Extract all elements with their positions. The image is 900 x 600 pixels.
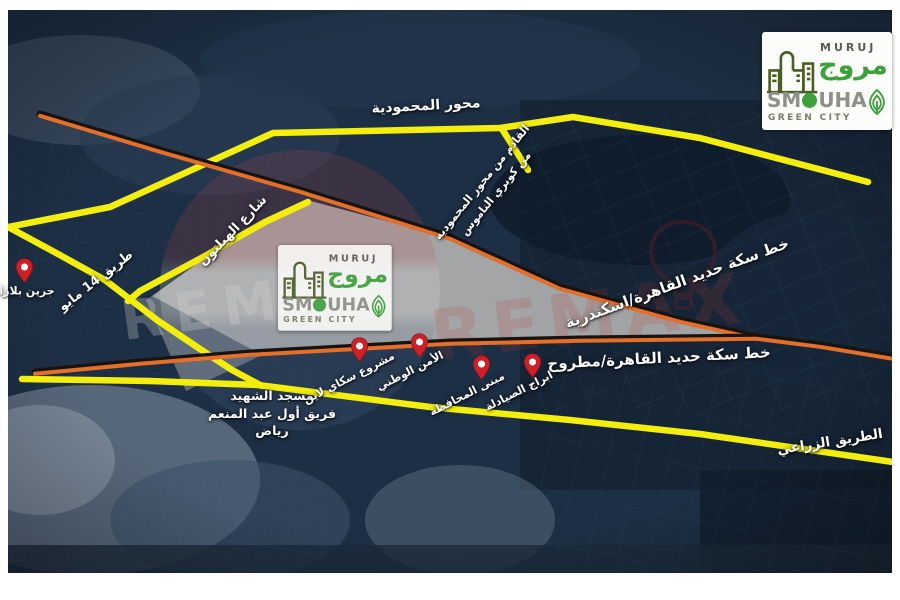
pin-icon <box>350 337 369 362</box>
district-o-disc: O <box>802 93 817 108</box>
brand-name-ar: مروج <box>327 262 388 288</box>
leaf-icon <box>368 294 389 319</box>
brand-tagline: GREEN CITY <box>283 316 356 325</box>
pin-icon <box>410 333 429 358</box>
pin-icon <box>15 258 34 283</box>
district-suffix: UHA <box>327 294 369 315</box>
brand-logo-watermark: MURUJ مروج SMOUHA GREEN CITY <box>278 245 392 331</box>
map-pin-governorate-building <box>472 355 491 384</box>
location-map: REMAX REMAX <box>0 0 900 600</box>
map-pin-green-plaza <box>15 258 34 287</box>
district-prefix: SM <box>767 88 801 112</box>
pin-icon <box>472 355 491 380</box>
mosque-label-line2: فريق أول عبد المنعم <box>208 404 336 422</box>
district-o-disc: O <box>313 298 326 311</box>
map-pin-skyline-project <box>350 337 369 366</box>
brand-district: SMOUHA <box>282 294 369 315</box>
district-prefix: SM <box>282 294 312 315</box>
brand-name-ar: مروج <box>818 51 888 81</box>
map-pin-national-security <box>410 333 429 362</box>
brand-tagline: GREEN CITY <box>768 113 852 123</box>
district-suffix: UHA <box>818 88 866 112</box>
leaf-icon <box>865 88 889 116</box>
map-pin-pharmacists-towers <box>523 353 542 382</box>
brand-district: SMOUHA <box>767 88 867 112</box>
mosque-label-line3: رياض <box>208 422 336 440</box>
brand-logo-card: MURUJ مروج SMOUHA GREEN CITY <box>762 32 892 130</box>
pin-icon <box>523 353 542 378</box>
